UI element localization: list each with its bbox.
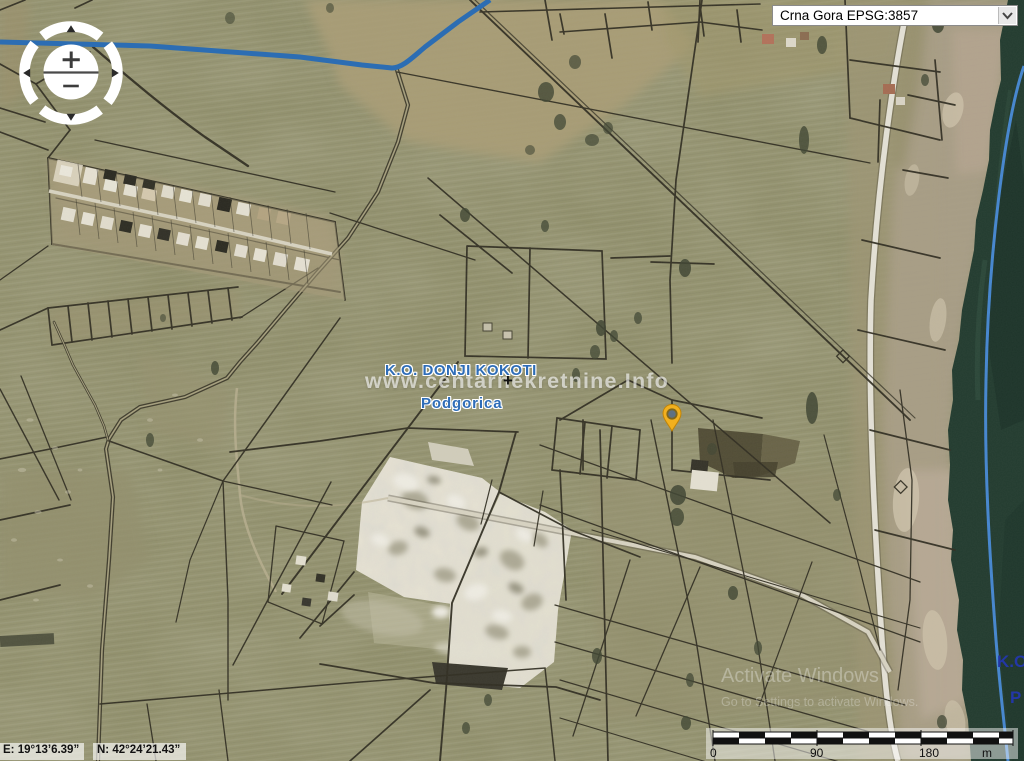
- svg-text:90: 90: [810, 746, 824, 759]
- svg-text:0: 0: [710, 746, 717, 759]
- svg-text:m: m: [982, 746, 992, 759]
- svg-text:180: 180: [919, 746, 939, 759]
